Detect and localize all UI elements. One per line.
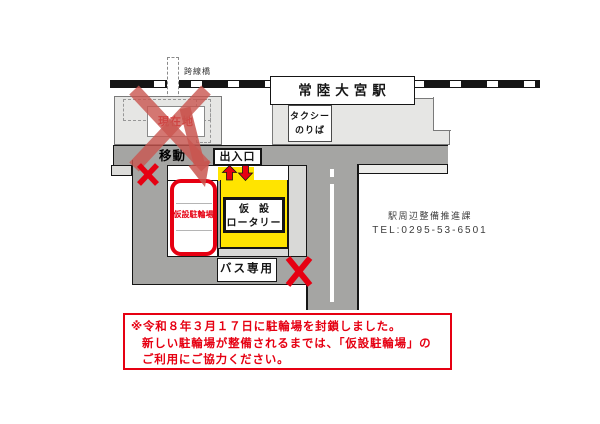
overpass-bridge-label: 跨線橋: [184, 66, 211, 77]
notice-box: ※令和８年３月１７日に駐輪場を封鎖しました。 新しい駐輪場が整備されるまでは、「…: [123, 313, 452, 370]
notice-line2: 新しい駐輪場が整備されるまでは、「仮設駐輪場」の: [131, 336, 450, 353]
road-centerline: [330, 169, 334, 177]
current-location-box: 現在地: [147, 106, 205, 137]
taxi-stand-label-line2: のりば: [289, 123, 331, 137]
notice-line3: ご利用にご協力ください。: [131, 352, 450, 369]
station-area-map: 跨線橋 現在地 仮設駐輪場 仮 設 ロータリー 常陸大宮駅 タクシー のりば 出…: [0, 0, 600, 424]
move-label: 移動: [159, 145, 186, 164]
rotary-sidewalk-south: [218, 248, 289, 257]
plaza-corner-cut: [433, 97, 451, 131]
temp-bike-parking-label: 仮設駐輪場: [167, 209, 220, 220]
temp-rotary-label-line1: 仮 設: [226, 203, 282, 217]
rotary-sidewalk-east: [288, 165, 307, 257]
bus-only-box: バス専用: [217, 258, 277, 282]
road-stub-west: [111, 165, 132, 176]
contact-department: 駅周辺整備推進課: [368, 209, 492, 222]
bike-parking-divider: [176, 230, 212, 231]
south-road-edge-west: [306, 284, 308, 310]
road-centerline: [330, 184, 334, 302]
taxi-stand-box: タクシー のりば: [288, 105, 332, 142]
temp-rotary-label-line2: ロータリー: [226, 217, 282, 231]
bike-parking-divider: [176, 203, 212, 204]
station-building: 常陸大宮駅: [270, 76, 415, 105]
temp-rotary-box: 仮 設 ロータリー: [223, 197, 285, 233]
sidewalk-east: [358, 164, 448, 174]
notice-line1: ※令和８年３月１７日に駐輪場を封鎖しました。: [131, 319, 450, 336]
entrance-box: 出入口: [213, 148, 262, 166]
south-road-edge-east: [357, 164, 359, 310]
entrance-yellow-zone: [218, 167, 254, 182]
taxi-stand-label-line1: タクシー: [289, 109, 331, 123]
contact-tel: TEL:0295-53-6501: [358, 225, 502, 236]
